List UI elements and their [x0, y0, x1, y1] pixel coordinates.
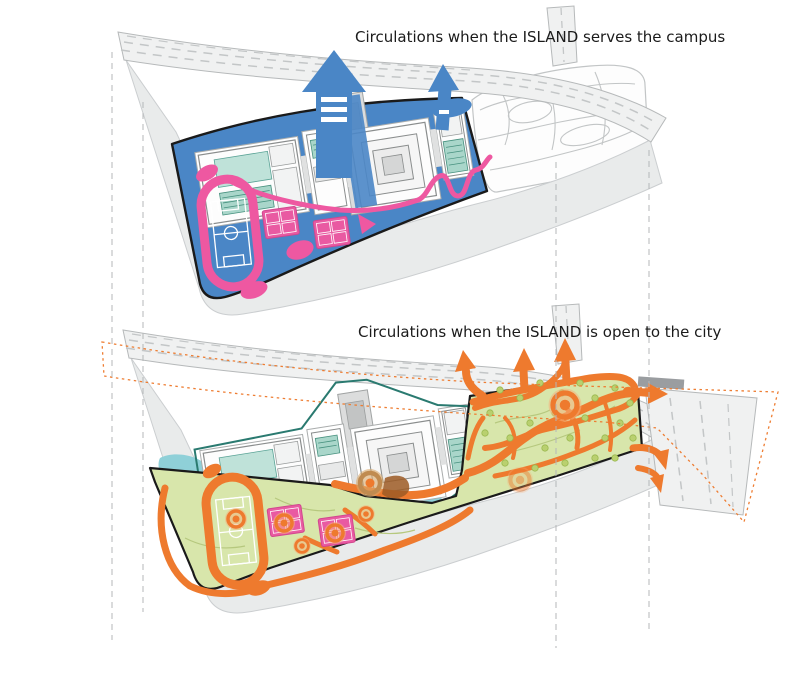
city-mode-diagram [102, 304, 778, 613]
campus-mode-diagram [118, 6, 666, 315]
bridge-patch [382, 476, 409, 499]
sports-courts [262, 206, 300, 238]
entry-node-icon [324, 522, 346, 544]
sports-courts [313, 216, 351, 248]
entry-node-icon [507, 467, 533, 493]
campus-mode-title: Circulations when the ISLAND serves the … [355, 28, 725, 46]
entry-node-icon [225, 508, 247, 530]
entry-node-icon [273, 512, 295, 534]
entry-node-icon [549, 389, 582, 422]
city-mode-title: Circulations when the ISLAND is open to … [358, 323, 721, 341]
arrow-up-icon [513, 348, 535, 372]
entry-node-icon [357, 505, 375, 523]
entry-node-icon [356, 469, 384, 497]
entry-node-icon [293, 537, 311, 555]
circulation-diagram-sheet: Circulations when the ISLAND serves the … [0, 0, 800, 677]
